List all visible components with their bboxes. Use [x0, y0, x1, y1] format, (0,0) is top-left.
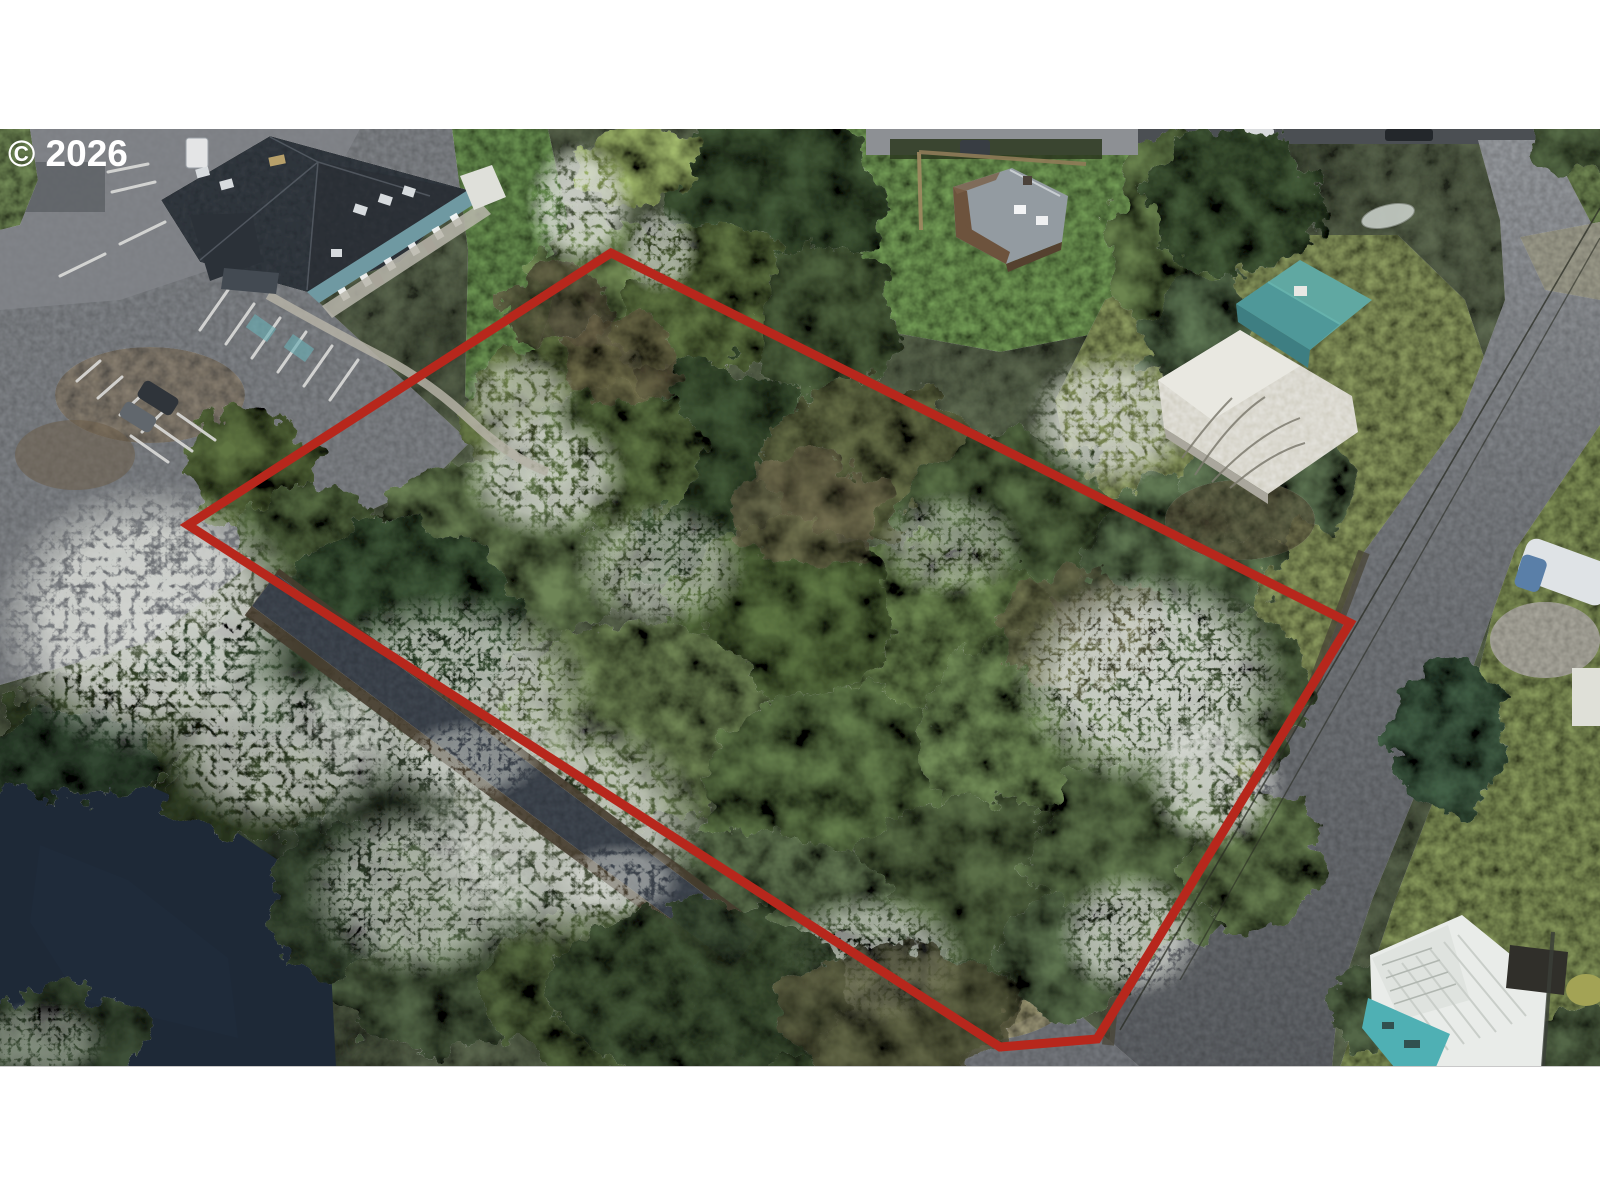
svg-text:© 2026: © 2026	[8, 133, 128, 174]
